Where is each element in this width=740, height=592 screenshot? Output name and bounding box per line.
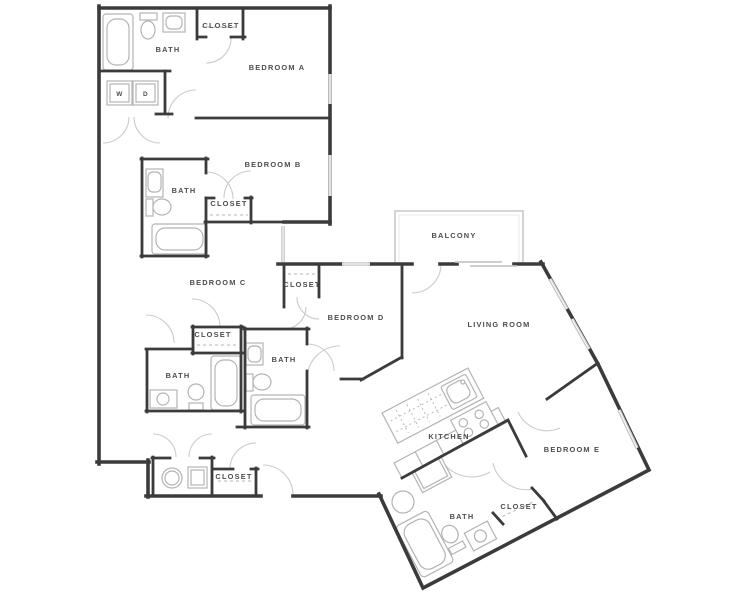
label-bedroom-a: BEDROOM A	[249, 63, 306, 72]
door-arc	[307, 344, 334, 371]
bathtub-icon	[152, 224, 207, 254]
label-closet-mid: CLOSET	[194, 330, 231, 339]
toilet-icon	[188, 384, 204, 410]
bathtub-icon	[251, 395, 305, 425]
label-closet-c: CLOSET	[283, 280, 320, 289]
door-arc	[307, 346, 340, 379]
label-balcony: BALCONY	[432, 231, 477, 240]
room-labels: BATH CLOSET BEDROOM A W D BEDROOM B BATH…	[116, 21, 600, 521]
sink-icon	[464, 521, 496, 551]
exterior-walls	[97, 6, 649, 588]
door-arc	[412, 264, 441, 293]
entry-door-arc	[263, 465, 293, 495]
door-arc	[206, 38, 231, 63]
door-arc	[189, 434, 212, 457]
door-arc	[153, 434, 176, 457]
label-closet-e: CLOSET	[500, 502, 537, 511]
door-arc	[284, 307, 306, 329]
door-arc	[192, 299, 220, 327]
label-bedroom-e: BEDROOM E	[544, 445, 600, 454]
water-heater-icon	[162, 468, 182, 488]
door-arc	[206, 172, 233, 199]
toilet-icon	[146, 199, 171, 216]
label-bath-b: BATH	[172, 186, 197, 195]
label-bath-d: BATH	[272, 355, 297, 364]
door-arc	[103, 117, 129, 143]
sink-icon	[246, 343, 263, 365]
label-bath-e: BATH	[450, 512, 475, 521]
label-closet-a: CLOSET	[202, 21, 239, 30]
toilet-icon	[246, 374, 271, 391]
bathtub-icon	[103, 14, 133, 70]
sliding-door	[455, 262, 517, 266]
label-dryer: D	[143, 91, 148, 98]
floor-plan-drawing: BATH CLOSET BEDROOM A W D BEDROOM B BATH…	[0, 0, 740, 592]
bathtub-icon	[211, 356, 241, 410]
sink-icon	[150, 390, 177, 408]
label-washer: W	[116, 91, 123, 98]
utility-appliance-icon	[188, 467, 207, 488]
door-arc	[230, 443, 256, 469]
door-arc	[297, 297, 319, 319]
label-closet-b: CLOSET	[210, 199, 247, 208]
water-heater-icon	[392, 491, 414, 513]
door-arc	[134, 117, 160, 143]
door-arc	[518, 412, 560, 431]
label-bedroom-c: BEDROOM C	[190, 278, 247, 287]
door-arc	[224, 171, 251, 198]
label-bath-a: BATH	[156, 45, 181, 54]
fixtures	[103, 13, 506, 578]
sink-icon	[146, 169, 163, 197]
label-kitchen: KITCHEN	[428, 432, 469, 441]
label-bath-c: BATH	[166, 371, 191, 380]
door-arc	[146, 315, 174, 343]
label-bedroom-b: BEDROOM B	[245, 160, 302, 169]
closet-rods	[197, 27, 533, 519]
label-living-room: LIVING ROOM	[468, 320, 531, 329]
sink-icon	[163, 13, 185, 32]
toilet-icon	[140, 13, 157, 39]
floor-plan: BATH CLOSET BEDROOM A W D BEDROOM B BATH…	[0, 0, 740, 592]
door-arc	[493, 463, 533, 490]
label-closet-entry: CLOSET	[215, 472, 252, 481]
label-bedroom-d: BEDROOM D	[328, 313, 385, 322]
